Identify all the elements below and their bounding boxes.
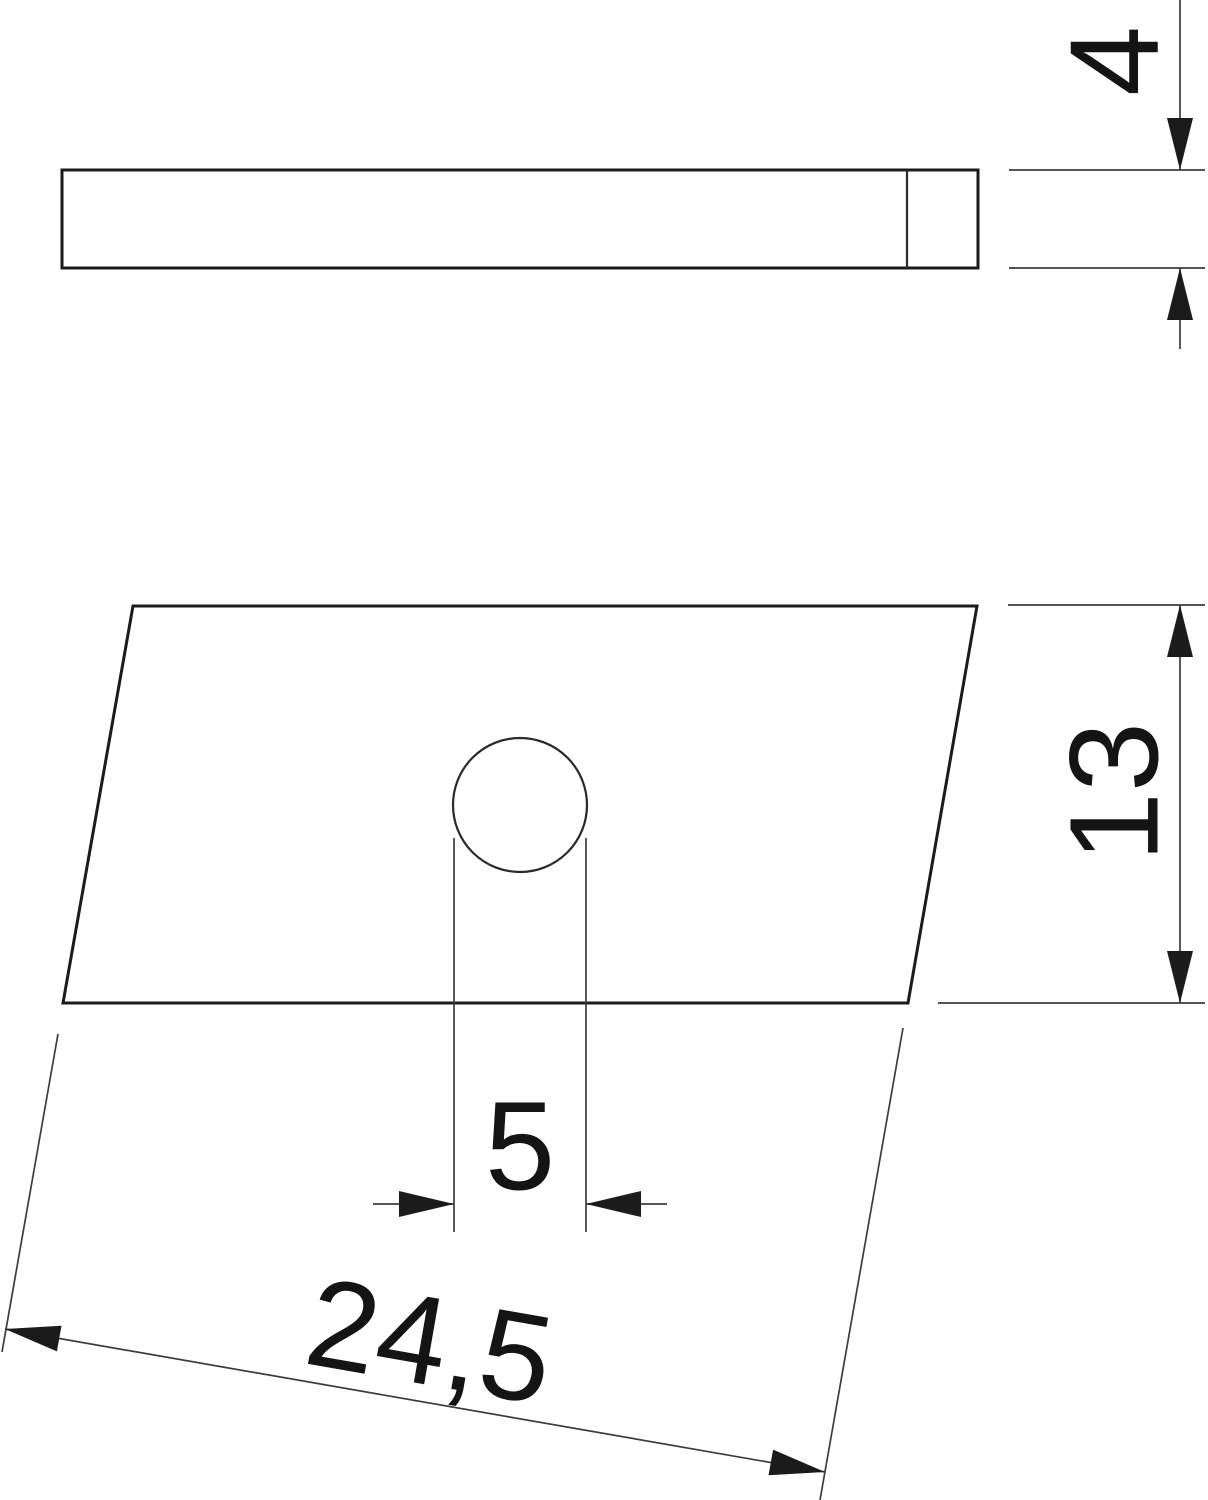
plan-view-plate-outline: [63, 606, 977, 1003]
arrow-hole-right-icon: [586, 1191, 641, 1217]
hole-circle: [453, 738, 587, 872]
technical-drawing: 4 13 5 24,5: [0, 0, 1208, 1500]
arrow-height-top-icon: [1167, 605, 1193, 657]
arrow-thickness-bottom-icon: [1167, 268, 1193, 320]
drawing-canvas: 4 13 5 24,5: [0, 0, 1208, 1500]
dim-label-hole-diameter: 5: [485, 1076, 555, 1217]
arrow-hole-left-icon: [399, 1191, 454, 1217]
ext-line-length-left: [2, 1034, 58, 1352]
dim-label-thickness: 4: [1044, 26, 1185, 96]
arrow-length-right-icon: [769, 1450, 826, 1476]
side-view: [62, 170, 978, 268]
arrow-thickness-top-icon: [1167, 118, 1193, 170]
side-view-plate-outline: [62, 170, 978, 268]
dim-label-length: 24,5: [297, 1250, 563, 1431]
arrow-length-left-icon: [5, 1326, 62, 1352]
ext-line-length-right: [820, 1028, 903, 1500]
dimension-lines: [2, 0, 1205, 1500]
dimension-arrows: [5, 118, 1193, 1475]
arrow-height-bottom-icon: [1167, 951, 1193, 1003]
plan-view: [63, 606, 977, 1003]
dim-label-height: 13: [1044, 722, 1185, 862]
